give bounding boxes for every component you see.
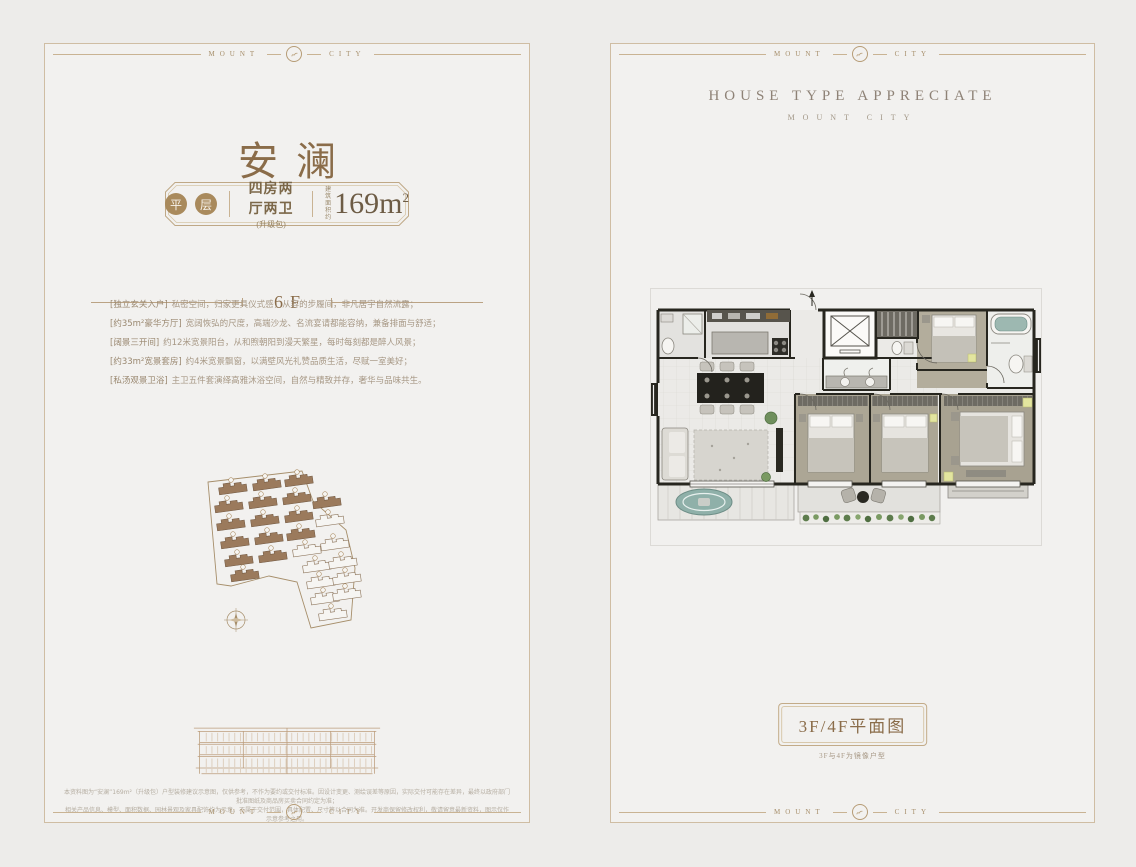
spa-tub <box>676 489 732 515</box>
feature-line: [阔景三开间]约12米宽景阳台，从和煦朝阳到漫天繁星，每时每刻都是醉人风景； <box>110 334 464 353</box>
area-sup: 2 <box>403 190 410 205</box>
left-panel: MOUNT CITY 安澜 平 层 四房两厅两卫 (升级包) <box>44 43 530 823</box>
brand-logo-icon <box>286 46 302 62</box>
outline-buildings <box>292 513 361 621</box>
brand-logo-icon <box>852 804 868 820</box>
plan-label-box: 3F/4F平面图 <box>778 703 928 746</box>
elevator-shaft <box>824 310 876 358</box>
plan-note: 3F与4F为镜像户型 <box>611 751 1094 761</box>
bedroom-3 <box>873 414 937 472</box>
area-label-line2: 面积约 <box>325 201 331 222</box>
compass-icon <box>224 608 248 632</box>
feature-line: [约33m²宽景套房]约4米宽景飘窗，以满壁风光礼赞品质生活，尽赋一室美好； <box>110 353 464 372</box>
badge-tag-2: 层 <box>195 193 217 215</box>
dining-set <box>697 362 764 414</box>
bedroom-2 <box>799 414 863 472</box>
floor-plan-drawing <box>650 288 1042 551</box>
site-plan-drawing <box>172 468 402 653</box>
area-value: 169m2 <box>334 189 409 219</box>
unit-badge: 平 层 四房两厅两卫 (升级包) 建筑 面积约 169m2 <box>165 182 409 226</box>
left-panel-top-band: MOUNT CITY <box>53 47 521 61</box>
header-subtitle: MOUNT CITY <box>611 113 1094 122</box>
wardrobe <box>872 396 938 406</box>
feature-line: [约35m²豪华方厅]宽阔恢弘的尺度，高端沙龙、名流宴请都能容纳，兼备排面与舒适… <box>110 315 464 334</box>
badge-layout-text: 四房两厅两卫 <box>242 178 301 218</box>
right-panel-top-band: MOUNT CITY <box>619 47 1086 61</box>
brand-logo-icon <box>286 804 302 820</box>
brand-logo-icon <box>852 46 868 62</box>
plan-label-text: 3F/4F平面图 <box>781 706 925 743</box>
right-panel-bottom-band: MOUNT CITY <box>619 805 1086 819</box>
building-elevation-drawing <box>192 720 382 783</box>
area-label-line1: 建筑 <box>325 187 331 201</box>
badge-tag-1: 平 <box>165 193 187 215</box>
right-panel: MOUNT CITY HOUSE TYPE APPRECIATE MOUNT C… <box>610 43 1095 823</box>
feature-line: [私汤观景卫浴]主卫五件套演绎高雅沐浴空间，自然与精致并存，奢华与品味共生。 <box>110 372 464 391</box>
feature-line: [独立玄关入户]私密空间，归家更具仪式感，从容的步履间，非凡居宇自然流露； <box>110 296 464 315</box>
right-panel-header: HOUSE TYPE APPRECIATE MOUNT CITY <box>611 88 1094 122</box>
brand-word-city: CITY <box>321 50 373 58</box>
stairs <box>876 310 918 338</box>
brand-word-mount: MOUNT <box>201 50 268 58</box>
feature-list: [独立玄关入户]私密空间，归家更具仪式感，从容的步履间，非凡居宇自然流露； [约… <box>110 296 464 391</box>
wardrobe <box>798 396 868 406</box>
badge-layout-note: (升级包) <box>242 219 301 230</box>
brochure-page: MOUNT CITY 安澜 平 层 四房两厅两卫 (升级包) <box>0 0 1136 867</box>
left-panel-bottom-band: MOUNT CITY <box>53 805 521 819</box>
header-title: HOUSE TYPE APPRECIATE <box>611 88 1094 105</box>
